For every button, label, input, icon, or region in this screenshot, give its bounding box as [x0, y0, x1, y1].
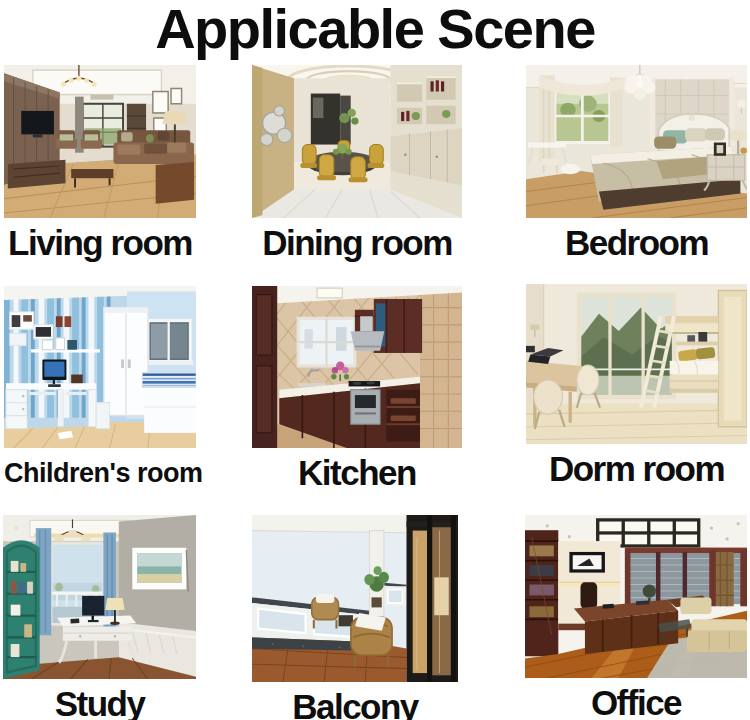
scene-label-dining-room: Dining room: [252, 225, 462, 261]
scene-cell-study: Study: [3, 515, 196, 720]
scene-cell-dorm-room: Dorm room: [526, 284, 747, 487]
scene-label-childrens-room: Children's room: [4, 455, 196, 491]
scene-cell-kitchen: Kitchen: [252, 286, 462, 491]
scene-label-dorm-room: Dorm room: [526, 451, 747, 487]
scene-cell-childrens-room: Children's room: [4, 286, 196, 491]
page-title: Applicable Scene: [0, 0, 750, 60]
scene-label-balcony: Balcony: [252, 689, 458, 720]
scene-label-kitchen: Kitchen: [252, 455, 462, 491]
scene-label-study: Study: [3, 686, 196, 720]
dining-room-photo: [252, 65, 462, 218]
kitchen-photo: [252, 286, 462, 448]
scene-cell-balcony: Balcony: [252, 515, 458, 720]
scene-label-living-room: Living room: [4, 225, 196, 261]
scene-label-bedroom: Bedroom: [526, 225, 747, 261]
bedroom-photo: [526, 65, 747, 218]
dorm-room-photo: [526, 284, 747, 444]
balcony-photo: [252, 515, 458, 682]
scene-cell-bedroom: Bedroom: [526, 65, 747, 261]
scene-cell-living-room: Living room: [4, 65, 196, 261]
scene-cell-dining-room: Dining room: [252, 65, 462, 261]
living-room-photo: [4, 65, 196, 218]
study-photo: [3, 515, 196, 679]
scene-cell-office: Office: [525, 515, 747, 720]
office-photo: [525, 515, 747, 678]
scene-label-office: Office: [525, 685, 747, 720]
childrens-room-photo: [4, 286, 196, 448]
